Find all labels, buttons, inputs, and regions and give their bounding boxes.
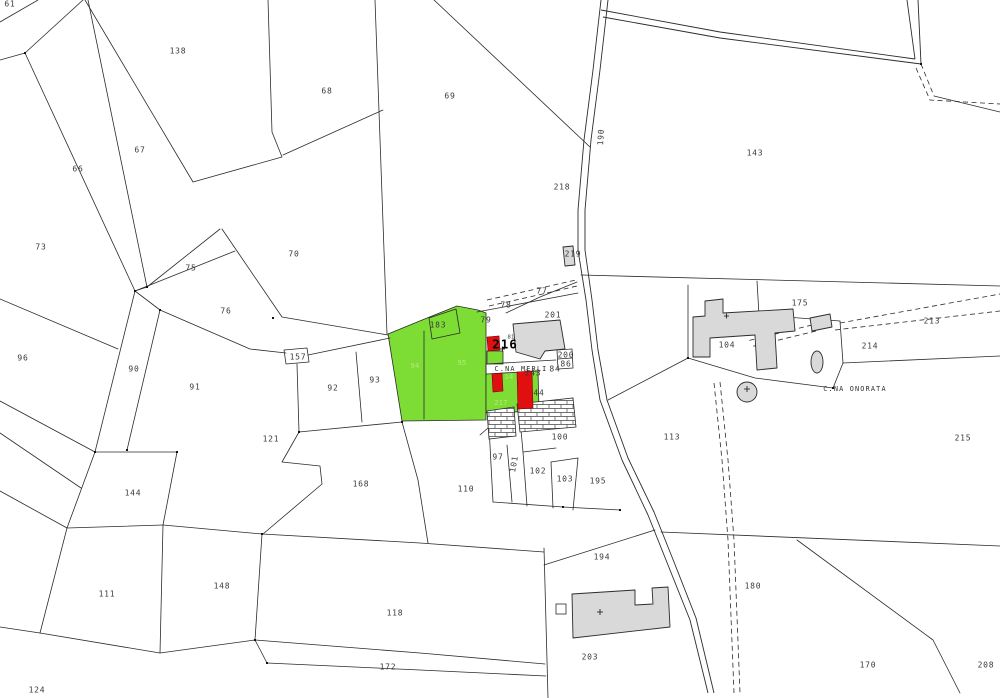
map-label-92: 92 [327, 384, 338, 393]
map-label-61: 61 [4, 0, 15, 9]
map-label-113: 113 [664, 433, 681, 442]
map-label-66: 66 [72, 165, 83, 174]
dashed-tracks [487, 64, 1000, 693]
map-label-78: 78 [500, 301, 511, 310]
map-label-110: 110 [458, 485, 475, 494]
map-label-91: 91 [189, 383, 200, 392]
map-label-138: 138 [170, 47, 187, 56]
map-label-94: 94 [410, 362, 419, 370]
map-label-44: 44 [533, 389, 544, 398]
map-label-172: 172 [380, 663, 397, 672]
map-label-183: 183 [430, 321, 447, 330]
map-label-216: 216 [492, 337, 518, 352]
map-label-194: 194 [594, 553, 611, 562]
map-label-121: 121 [263, 435, 280, 444]
map-label-76: 76 [220, 307, 231, 316]
map-label-219: 219 [565, 250, 582, 259]
map-label-118: 118 [387, 609, 404, 618]
map-label-214: 214 [862, 342, 879, 351]
map-label-102: 102 [530, 467, 547, 476]
map-label-c-na-onorata: C.NA ONORATA [823, 385, 887, 393]
map-label-215: 215 [955, 434, 972, 443]
map-label-70: 70 [288, 250, 299, 259]
map-label-100: 100 [552, 433, 569, 442]
map-label-67: 67 [134, 146, 145, 155]
map-label-168: 168 [353, 480, 370, 489]
map-label-c-na-merli: C.NA MERLI [495, 365, 548, 373]
map-label-208: 208 [978, 661, 995, 670]
cadastral-map: 6113868696766737570769690919293121144111… [0, 0, 1000, 698]
map-label-95: 95 [457, 359, 466, 367]
map-label-190: 190 [596, 128, 606, 145]
red-building-2 [492, 373, 503, 392]
map-label-111: 111 [99, 590, 116, 599]
map-label-69: 69 [444, 92, 455, 101]
cadastral-map-viewport: 6113868696766737570769690919293121144111… [0, 0, 1000, 698]
buildings-gray [513, 246, 832, 638]
map-label-79: 79 [480, 316, 491, 325]
map-label-96: 96 [17, 354, 28, 363]
map-label-203: 203 [582, 653, 599, 662]
map-label-90: 90 [128, 365, 139, 374]
map-label-68: 68 [321, 87, 332, 96]
map-label-218: 218 [554, 183, 571, 192]
map-label-97: 97 [492, 453, 503, 462]
map-label-124: 124 [29, 686, 46, 695]
map-label-195: 195 [590, 477, 607, 486]
map-label-77: 77 [536, 287, 547, 296]
parcel-labels: 6113868696766737570769690919293121144111… [4, 0, 994, 695]
building-onorata-shed [810, 314, 832, 331]
map-label-213: 213 [924, 317, 941, 326]
map-label-200: 200 [558, 351, 575, 360]
map-label-75: 75 [185, 264, 196, 273]
map-label-93: 93 [369, 376, 380, 385]
map-label-170: 170 [860, 661, 877, 670]
map-label-157: 157 [290, 353, 307, 362]
map-label-144: 144 [125, 489, 142, 498]
map-label-86: 86 [560, 360, 571, 369]
map-label-101: 101 [508, 455, 520, 473]
building-small-outline [556, 604, 566, 614]
map-label-148: 148 [214, 582, 231, 591]
map-label-175: 175 [792, 299, 809, 308]
building-silo-oval [811, 351, 823, 373]
map-label-84: 84 [549, 365, 560, 374]
map-label-104: 104 [719, 341, 736, 350]
map-label-180: 180 [745, 582, 762, 591]
building-onorata-main [693, 299, 795, 370]
map-label-143: 143 [747, 149, 764, 158]
map-label-73: 73 [35, 243, 46, 252]
map-label-217: 217 [494, 399, 508, 407]
building-bottom-farm [572, 587, 670, 638]
map-label-14: 14 [504, 373, 513, 381]
map-label-103: 103 [557, 475, 574, 484]
map-label-201: 201 [545, 311, 562, 320]
